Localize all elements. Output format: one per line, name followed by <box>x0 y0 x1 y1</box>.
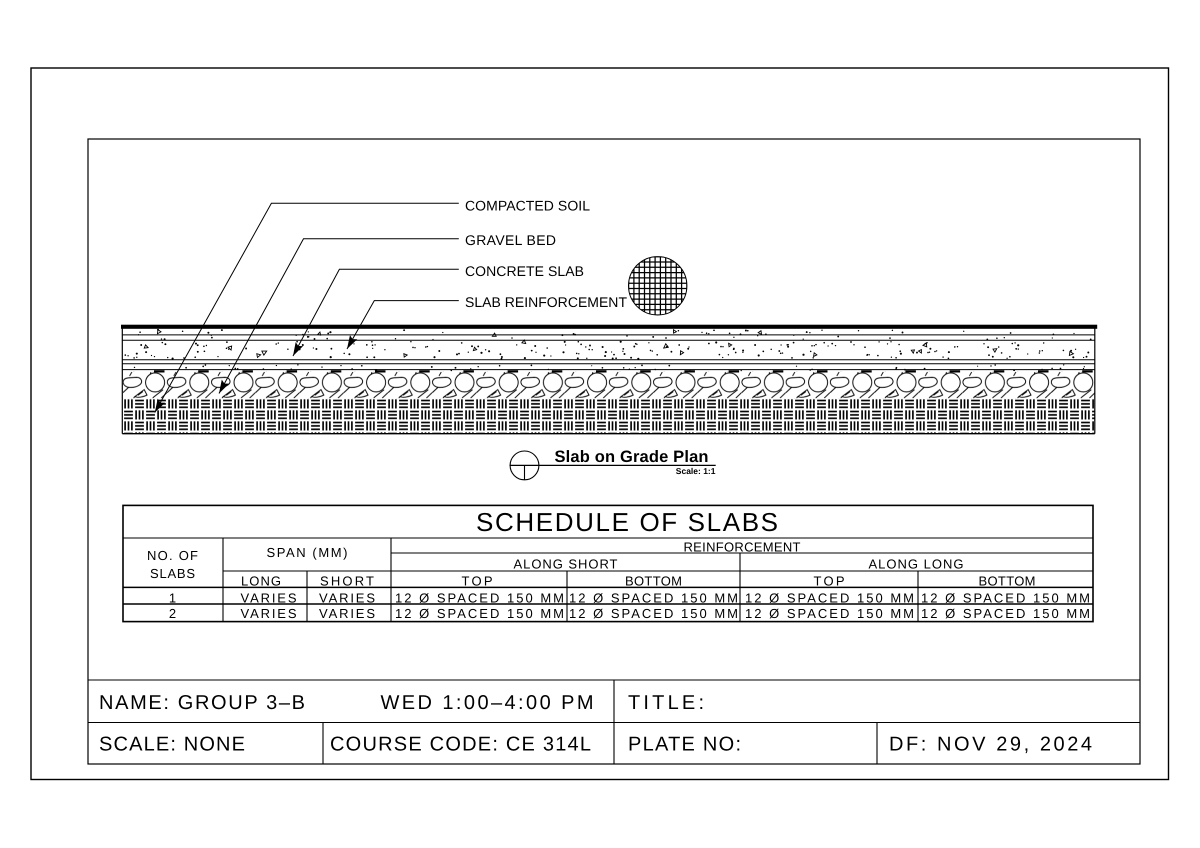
svg-text:BOTTOM: BOTTOM <box>979 574 1036 589</box>
svg-text:COURSE CODE: CE 314L: COURSE CODE: CE 314L <box>330 734 591 756</box>
svg-text:ALONG LONG: ALONG LONG <box>869 557 964 572</box>
svg-text:CONCRETE SLAB: CONCRETE SLAB <box>465 263 584 279</box>
svg-text:TOP: TOP <box>462 574 493 589</box>
svg-text:GRAVEL BED: GRAVEL BED <box>465 232 556 248</box>
svg-text:2: 2 <box>169 606 176 621</box>
svg-text:REINFORCEMENT: REINFORCEMENT <box>684 540 801 555</box>
svg-text:1: 1 <box>169 590 176 605</box>
svg-text:SPAN (MM): SPAN (MM) <box>267 545 348 560</box>
svg-text:COMPACTED SOIL: COMPACTED SOIL <box>465 198 590 214</box>
svg-text:SCALE: NONE: SCALE: NONE <box>99 734 245 756</box>
svg-text:LONG: LONG <box>241 574 281 589</box>
svg-text:WED 1:00–4:00 PM: WED 1:00–4:00 PM <box>381 692 594 714</box>
svg-text:Slab on Grade Plan: Slab on Grade Plan <box>555 448 709 466</box>
svg-text:SCHEDULE OF SLABS: SCHEDULE OF SLABS <box>476 507 778 537</box>
svg-text:TOP: TOP <box>814 574 845 589</box>
svg-text:SHORT: SHORT <box>320 574 374 589</box>
svg-text:PLATE NO:: PLATE NO: <box>628 734 741 756</box>
svg-text:NAME: GROUP 3–B: NAME: GROUP 3–B <box>99 692 305 714</box>
svg-text:Scale: 1:1: Scale: 1:1 <box>676 466 716 476</box>
svg-text:SLAB REINFORCEMENT: SLAB REINFORCEMENT <box>465 294 627 310</box>
svg-text:ALONG SHORT: ALONG SHORT <box>514 557 618 572</box>
svg-text:BOTTOM: BOTTOM <box>625 574 682 589</box>
svg-text:NO. OF: NO. OF <box>147 548 198 563</box>
svg-text:SLABS: SLABS <box>150 566 195 581</box>
